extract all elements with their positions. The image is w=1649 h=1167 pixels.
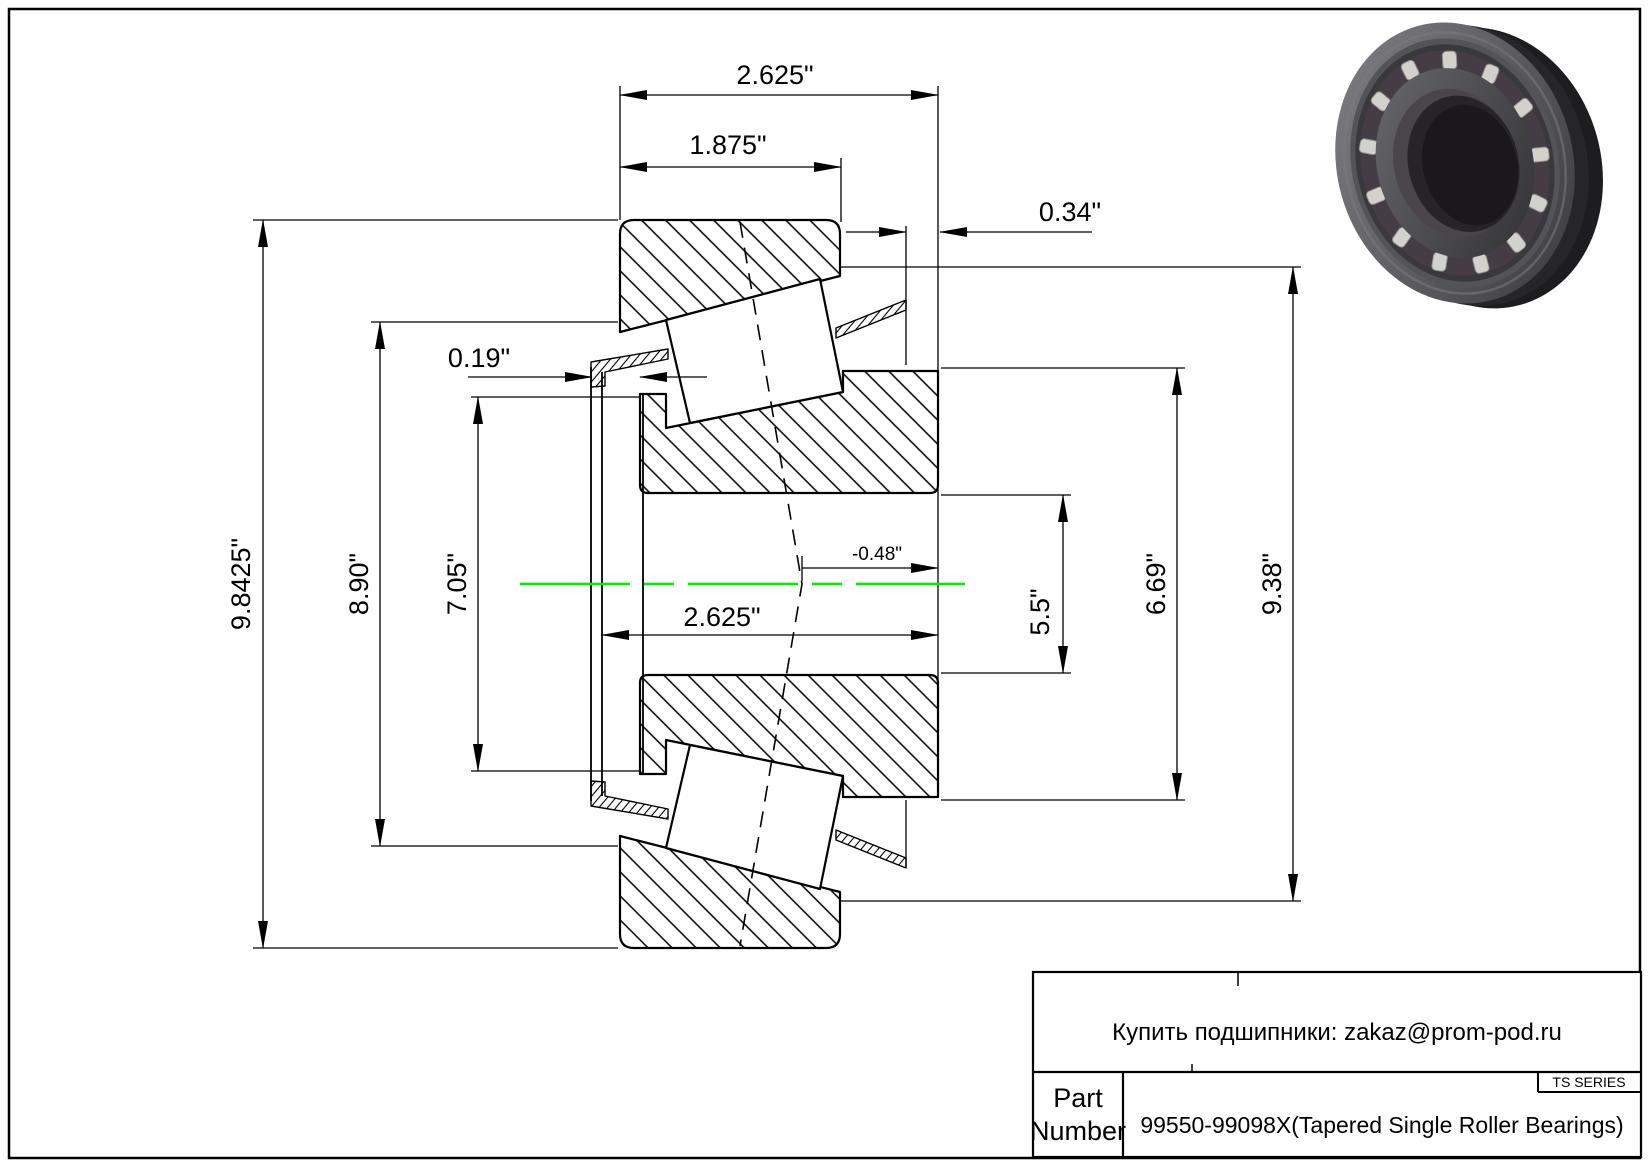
dim-cup-od-label: 9.38" (1257, 553, 1287, 615)
dim-standout-label: 0.34" (1039, 197, 1101, 227)
title-block: Купить подшипники: zakaz@prom-pod.ru TS … (1030, 972, 1641, 1157)
dim-cup-width-label: 1.875" (689, 130, 766, 160)
drawing-sheet: 2.625" 1.875" 0.34" 0.19" 2.625" -0.48" … (0, 0, 1649, 1167)
dim-flange-back-dia-label: 8.90" (344, 553, 374, 615)
part-number-text: 99550-99098X(Tapered Single Roller Beari… (1140, 1112, 1623, 1138)
dim-cone-back-dia-label: 6.69" (1141, 553, 1171, 615)
drawing-canvas: 2.625" 1.875" 0.34" 0.19" 2.625" -0.48" … (0, 0, 1649, 1167)
dim-protrusion-label: 0.19" (448, 343, 510, 373)
part-label-line2: Number (1030, 1116, 1126, 1146)
contact-text: Купить подшипники: zakaz@prom-pod.ru (1112, 1019, 1562, 1046)
dim-front-face-dia-label: 7.05" (442, 553, 472, 615)
dim-effective-center-label: -0.48" (852, 544, 902, 565)
roller-3d (1442, 51, 1457, 70)
dim-total-width-label: 2.625" (736, 60, 813, 90)
series-badge: TS SERIES (1552, 1074, 1625, 1090)
part-label-line1: Part (1053, 1083, 1103, 1113)
dim-bore-label: 5.5" (1025, 588, 1055, 635)
dim-flange-od-label: 9.8425" (226, 538, 256, 630)
dim-cone-width-label: 2.625" (683, 602, 760, 632)
